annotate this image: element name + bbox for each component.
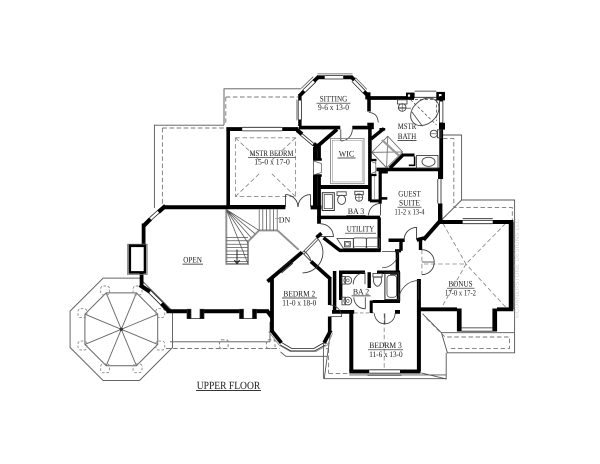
- svg-text:MSTR BEDRM: MSTR BEDRM: [250, 148, 294, 158]
- svg-text:SITTING: SITTING: [320, 93, 348, 103]
- svg-text:15-0 x 17-0: 15-0 x 17-0: [254, 158, 290, 167]
- svg-text:BONUS: BONUS: [448, 279, 472, 289]
- svg-text:BEDRM 2: BEDRM 2: [283, 288, 315, 298]
- svg-text:UTILITY: UTILITY: [347, 224, 375, 234]
- svg-text:OPEN: OPEN: [183, 255, 202, 265]
- svg-text:11-6 x 13-0: 11-6 x 13-0: [369, 350, 402, 359]
- svg-text:BA 3: BA 3: [348, 206, 365, 216]
- svg-text:BEDRM 3: BEDRM 3: [369, 340, 402, 350]
- svg-text:MSTR: MSTR: [398, 121, 417, 131]
- svg-text:DN: DN: [279, 215, 291, 224]
- svg-text:9-6 x 13-0: 9-6 x 13-0: [318, 103, 349, 112]
- svg-text:BATH: BATH: [398, 131, 417, 141]
- svg-text:WIC: WIC: [339, 148, 355, 158]
- svg-text:BA 2: BA 2: [353, 286, 369, 296]
- svg-text:11-0 x 18-0: 11-0 x 18-0: [282, 298, 316, 307]
- svg-text:11-2 x 13-4: 11-2 x 13-4: [395, 207, 426, 216]
- svg-text:17-0 x 17-2: 17-0 x 17-2: [445, 289, 476, 298]
- svg-text:SUITE: SUITE: [399, 198, 420, 208]
- svg-text:©CORNERSTONE DESIGNS LLC: ©CORNERSTONE DESIGNS LLC: [514, 218, 521, 318]
